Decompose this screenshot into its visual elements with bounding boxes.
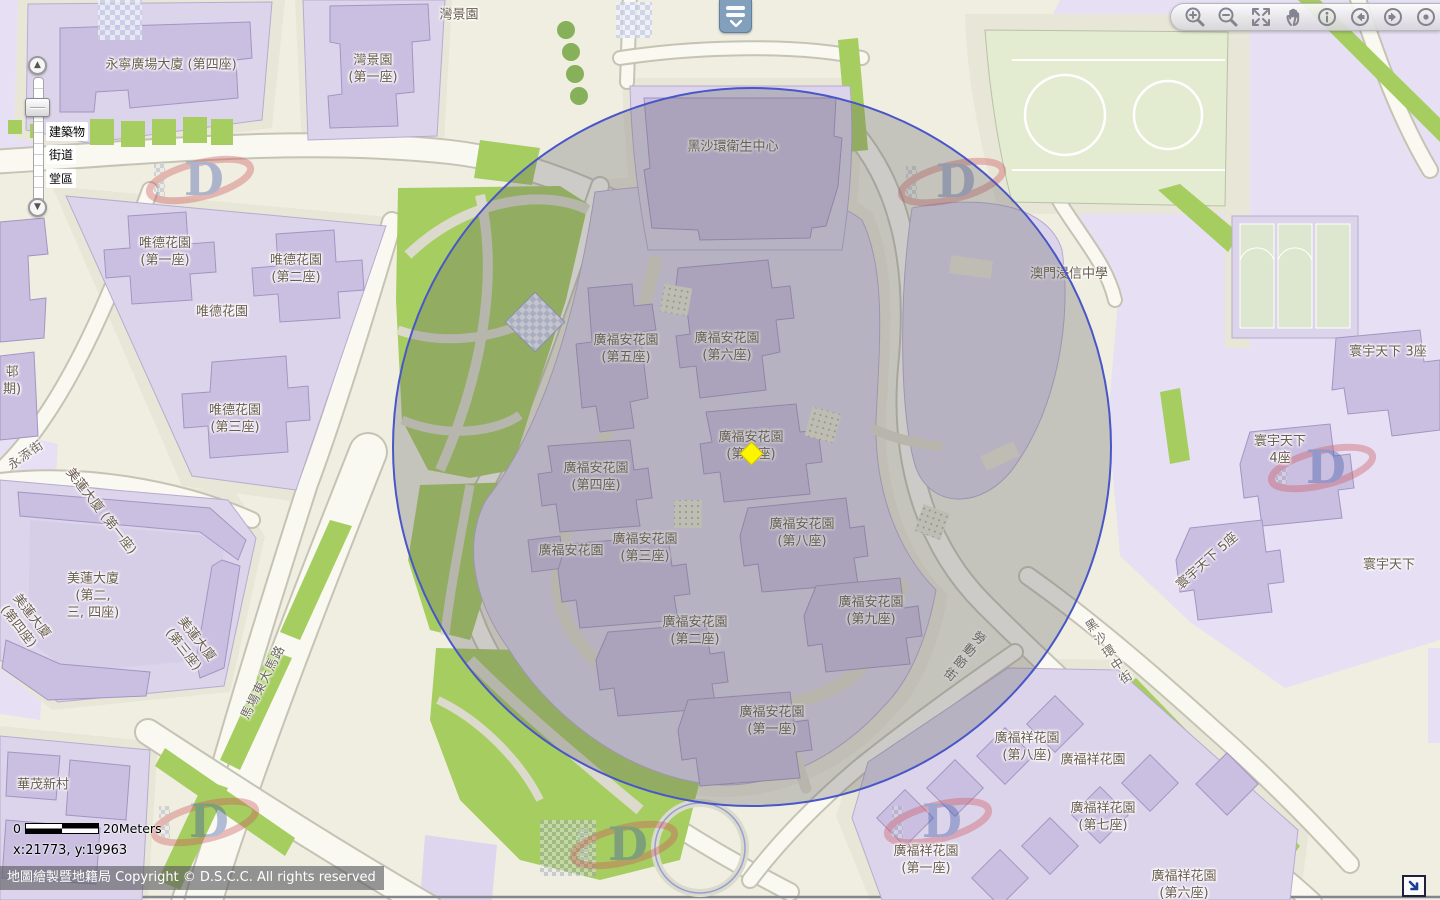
layer-label-堂區: 堂區	[46, 169, 76, 188]
legend-pulldown-tab[interactable]	[719, 0, 752, 33]
scale-zero-label: 0	[13, 821, 21, 836]
chevron-down-icon	[730, 20, 742, 27]
building-label: 灣景園(第一座)	[348, 53, 397, 87]
zoom-in-button[interactable]	[1184, 6, 1206, 28]
zoom-slider-down-button[interactable]: ▼	[28, 198, 47, 217]
building-label: 廣福安花園(第一座)	[739, 705, 804, 739]
building-label: 美蓮大廈(第二,三, 四座)	[67, 572, 119, 623]
layer-label-建築物: 建築物	[46, 122, 88, 141]
arrow-right-icon	[1382, 6, 1404, 28]
building-label: 寰宇天下4座	[1254, 434, 1306, 468]
building-label: 邨期)	[3, 365, 21, 399]
info-icon	[1316, 6, 1338, 28]
map-viewport[interactable]: D	[0, 0, 1440, 900]
building-label: 華茂新村	[17, 778, 69, 795]
full-extent-button[interactable]	[1250, 6, 1272, 28]
building-label: 唯德花園(第一座)	[139, 236, 191, 270]
building-label: 唯德花園(第二座)	[270, 253, 322, 287]
zoom-slider-up-button[interactable]: ▲	[28, 56, 47, 75]
building-label: 唯德花園	[196, 305, 248, 322]
zoom-slider-track[interactable]	[33, 77, 44, 203]
locate-button[interactable]	[1415, 6, 1437, 28]
scale-bar: 0 20Meters	[13, 821, 162, 836]
legend-bar-icon	[726, 6, 745, 10]
pan-button[interactable]	[1283, 6, 1305, 28]
layer-label-街道: 街道	[46, 145, 76, 164]
scale-bar-graphic	[25, 823, 99, 834]
building-label: 寰宇天下	[1363, 558, 1415, 575]
building-label: 廣福安花園(第三座)	[612, 532, 677, 566]
zoom-in-icon	[1184, 6, 1206, 28]
building-label: 廣福安花園(第九座)	[838, 595, 903, 629]
building-label: 永寧廣場大廈 (第四座)	[105, 58, 236, 75]
arrow-left-icon	[1349, 6, 1371, 28]
building-label: 廣福祥花園(第八座)	[994, 731, 1059, 765]
zoom-out-button[interactable]	[1217, 6, 1239, 28]
building-label: 寰宇天下 3座	[1349, 345, 1426, 362]
scale-distance-label: 20Meters	[103, 821, 162, 836]
cursor-coordinates: x:21773, y:19963	[13, 843, 127, 858]
building-label: 廣福安花園(第二座)	[662, 615, 727, 649]
zoom-slider-control: ▲ ▼ 建築物街道堂區	[24, 56, 94, 221]
full-extent-icon	[1250, 6, 1272, 28]
previous-extent-button[interactable]	[1349, 6, 1371, 28]
building-label: 灣景園	[439, 8, 478, 25]
copyright-bar: 地圖繪製暨地籍局 Copyright © D.S.C.C. All rights…	[0, 866, 384, 890]
pan-hand-icon	[1283, 6, 1305, 28]
zoom-out-icon	[1217, 6, 1239, 28]
building-label: 廣福祥花園(第一座)	[893, 844, 958, 878]
building-label: 廣福安花園(第六座)	[694, 331, 759, 365]
identify-button[interactable]	[1316, 6, 1338, 28]
building-label: 黑沙環衛生中心	[687, 140, 778, 157]
arrow-down-right-icon	[1407, 879, 1421, 893]
building-label: 廣福安花園(第四座)	[563, 461, 628, 495]
building-label: 廣福祥花園(第七座)	[1070, 801, 1135, 835]
zoom-slider-handle[interactable]	[25, 98, 50, 117]
building-label: 唯德花園(第三座)	[209, 403, 261, 437]
building-label: 廣福安花園	[538, 544, 603, 561]
next-extent-button[interactable]	[1382, 6, 1404, 28]
building-label: 廣福安花園(第五座)	[593, 333, 658, 367]
dot-circle-icon	[1415, 6, 1437, 28]
building-label: 廣福祥花園(第六座)	[1151, 869, 1216, 900]
building-label: 澳門浸信中學	[1030, 267, 1108, 284]
building-label: 廣福祥花園	[1060, 753, 1125, 770]
building-label: 廣福安花園(第八座)	[769, 517, 834, 551]
legend-bar-icon	[726, 13, 745, 17]
map-toolbar	[1170, 3, 1440, 31]
overview-map-toggle-button[interactable]	[1402, 875, 1426, 897]
